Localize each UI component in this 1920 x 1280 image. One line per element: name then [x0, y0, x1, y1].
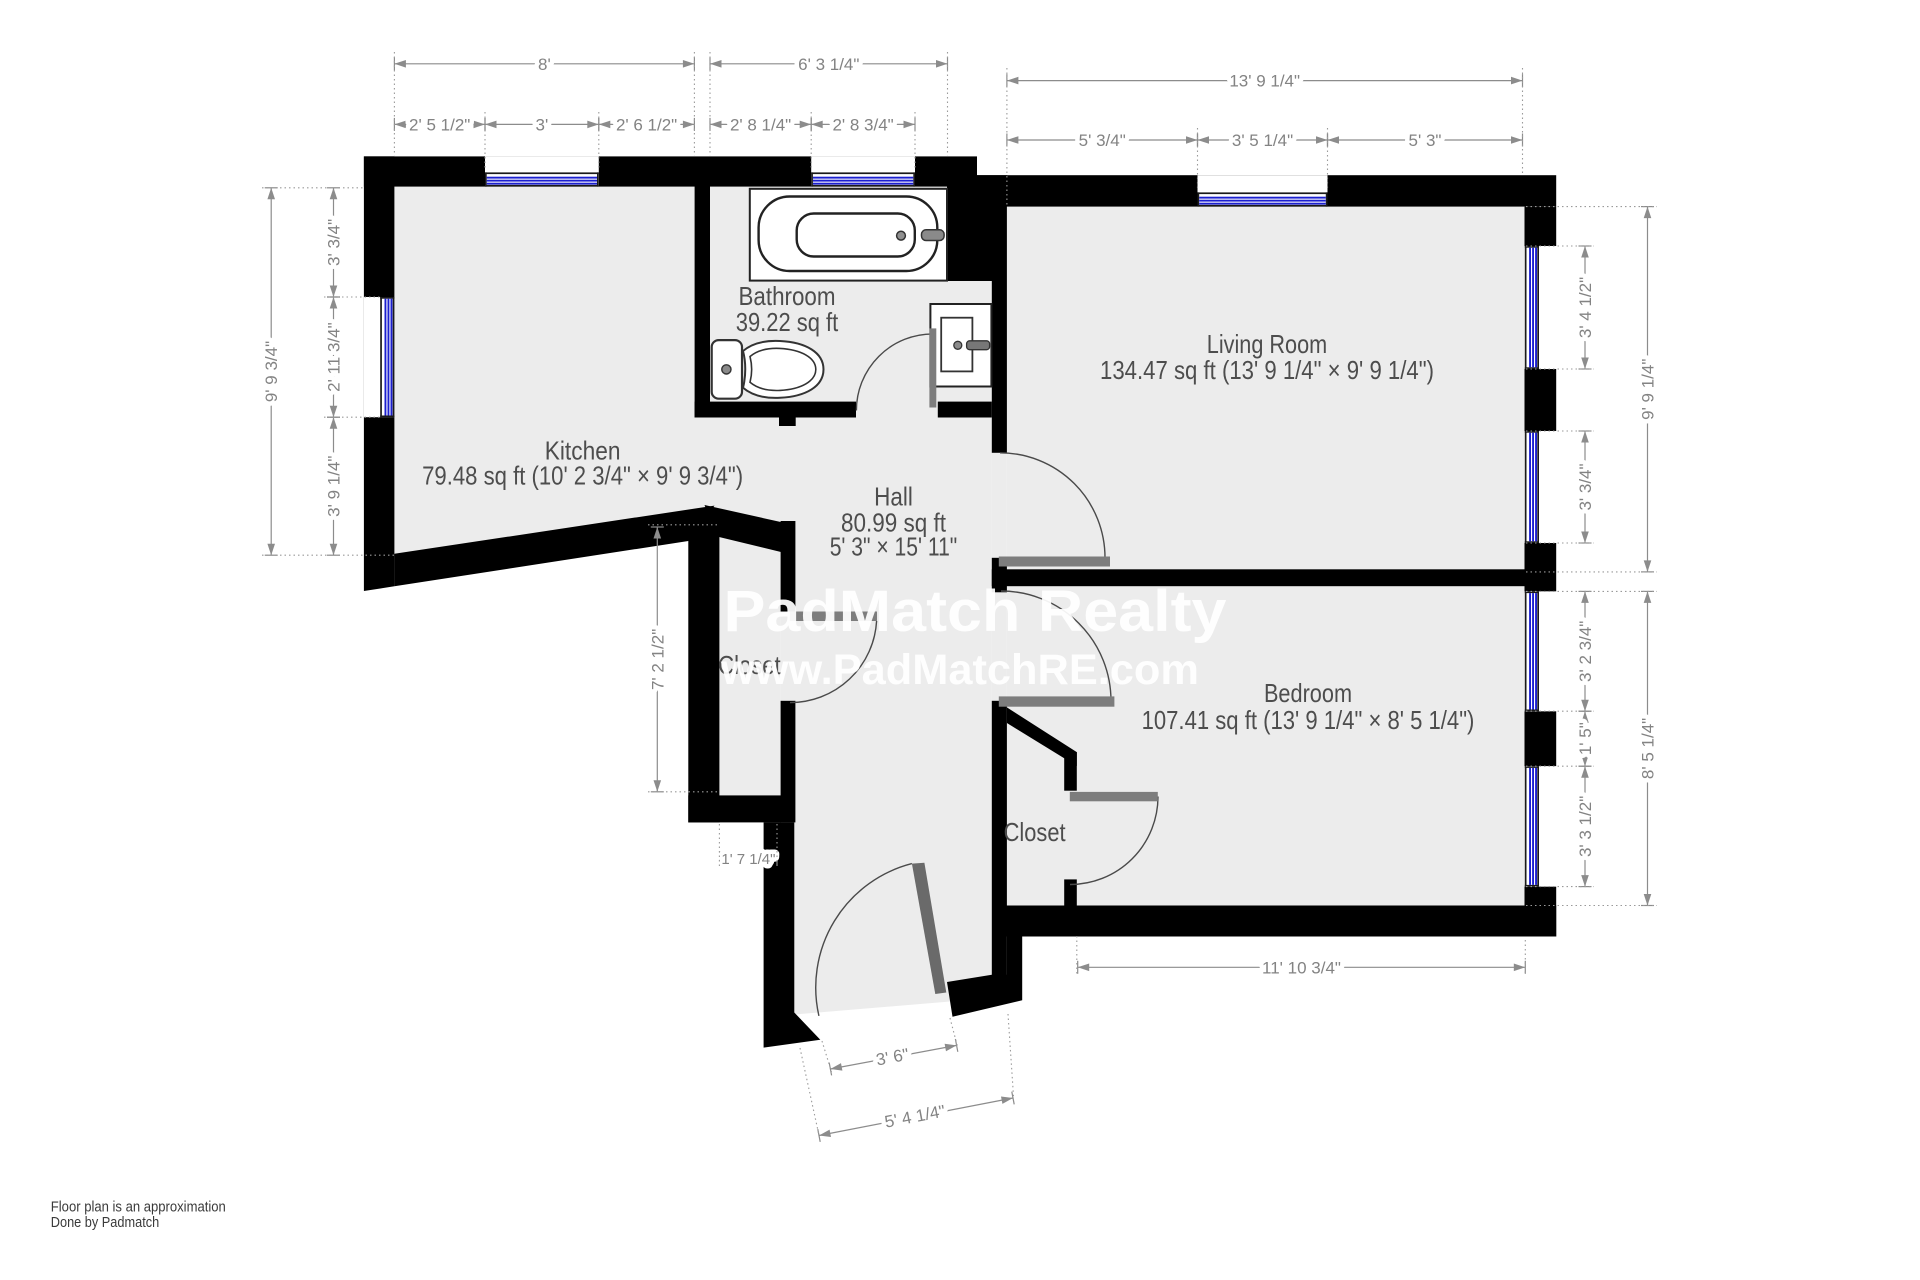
svg-text:2' 8 1/4": 2' 8 1/4": [730, 115, 791, 134]
svg-text:5' 3" × 15' 11": 5' 3" × 15' 11": [830, 532, 958, 562]
svg-text:3' 2 3/4": 3' 2 3/4": [1576, 621, 1595, 682]
svg-text:3' 4 1/2": 3' 4 1/2": [1576, 277, 1595, 338]
svg-text:Closet: Closet: [1004, 817, 1067, 847]
svg-text:1' 5": 1' 5": [1576, 722, 1595, 755]
svg-text:3' 3 1/2": 3' 3 1/2": [1576, 796, 1595, 857]
svg-text:3' 3/4": 3' 3/4": [1576, 463, 1595, 510]
svg-text:Floor plan is an approximation: Floor plan is an approximation: [51, 1198, 226, 1215]
svg-text:Bedroom: Bedroom: [1264, 678, 1352, 708]
svg-text:7' 2 1/2": 7' 2 1/2": [648, 629, 667, 690]
svg-text:9' 9 3/4": 9' 9 3/4": [262, 341, 281, 402]
svg-text:107.41 sq ft (13' 9 1/4" × 8': 107.41 sq ft (13' 9 1/4" × 8' 5 1/4"): [1142, 705, 1475, 735]
svg-text:Done by Padmatch: Done by Padmatch: [51, 1214, 159, 1231]
svg-text:13' 9 1/4": 13' 9 1/4": [1229, 72, 1300, 91]
svg-text:1' 7 1/4": 1' 7 1/4": [721, 851, 775, 868]
svg-text:39.22 sq ft: 39.22 sq ft: [736, 307, 839, 337]
svg-text:5' 3/4": 5' 3/4": [1079, 131, 1126, 150]
svg-text:PadMatch Realty: PadMatch Realty: [724, 579, 1227, 644]
svg-text:5' 3": 5' 3": [1409, 131, 1442, 150]
svg-text:2' 11 3/4": 2' 11 3/4": [325, 322, 344, 391]
svg-text:79.48 sq ft (10' 2 3/4" × 9' 9: 79.48 sq ft (10' 2 3/4" × 9' 9 3/4"): [422, 461, 743, 491]
svg-text:8' 5 1/4": 8' 5 1/4": [1639, 718, 1658, 779]
svg-text:2' 8 3/4": 2' 8 3/4": [832, 115, 893, 134]
svg-text:8': 8': [538, 55, 551, 74]
svg-text:2' 5 1/2": 2' 5 1/2": [409, 115, 470, 134]
svg-text:www.PadMatchRE.com: www.PadMatchRE.com: [720, 646, 1199, 694]
svg-text:134.47 sq ft (13' 9 1/4" × 9': 134.47 sq ft (13' 9 1/4" × 9' 9 1/4"): [1100, 355, 1434, 385]
svg-text:3' 9 1/4": 3' 9 1/4": [325, 456, 344, 517]
svg-text:11' 10 3/4": 11' 10 3/4": [1262, 958, 1341, 977]
svg-text:3' 3/4": 3' 3/4": [325, 219, 344, 266]
svg-text:6' 3 1/4": 6' 3 1/4": [798, 55, 859, 74]
svg-text:3' 5 1/4": 3' 5 1/4": [1232, 131, 1293, 150]
svg-text:3': 3': [536, 115, 549, 134]
svg-text:9' 9 1/4": 9' 9 1/4": [1638, 359, 1657, 420]
svg-text:2' 6 1/2": 2' 6 1/2": [616, 115, 677, 134]
